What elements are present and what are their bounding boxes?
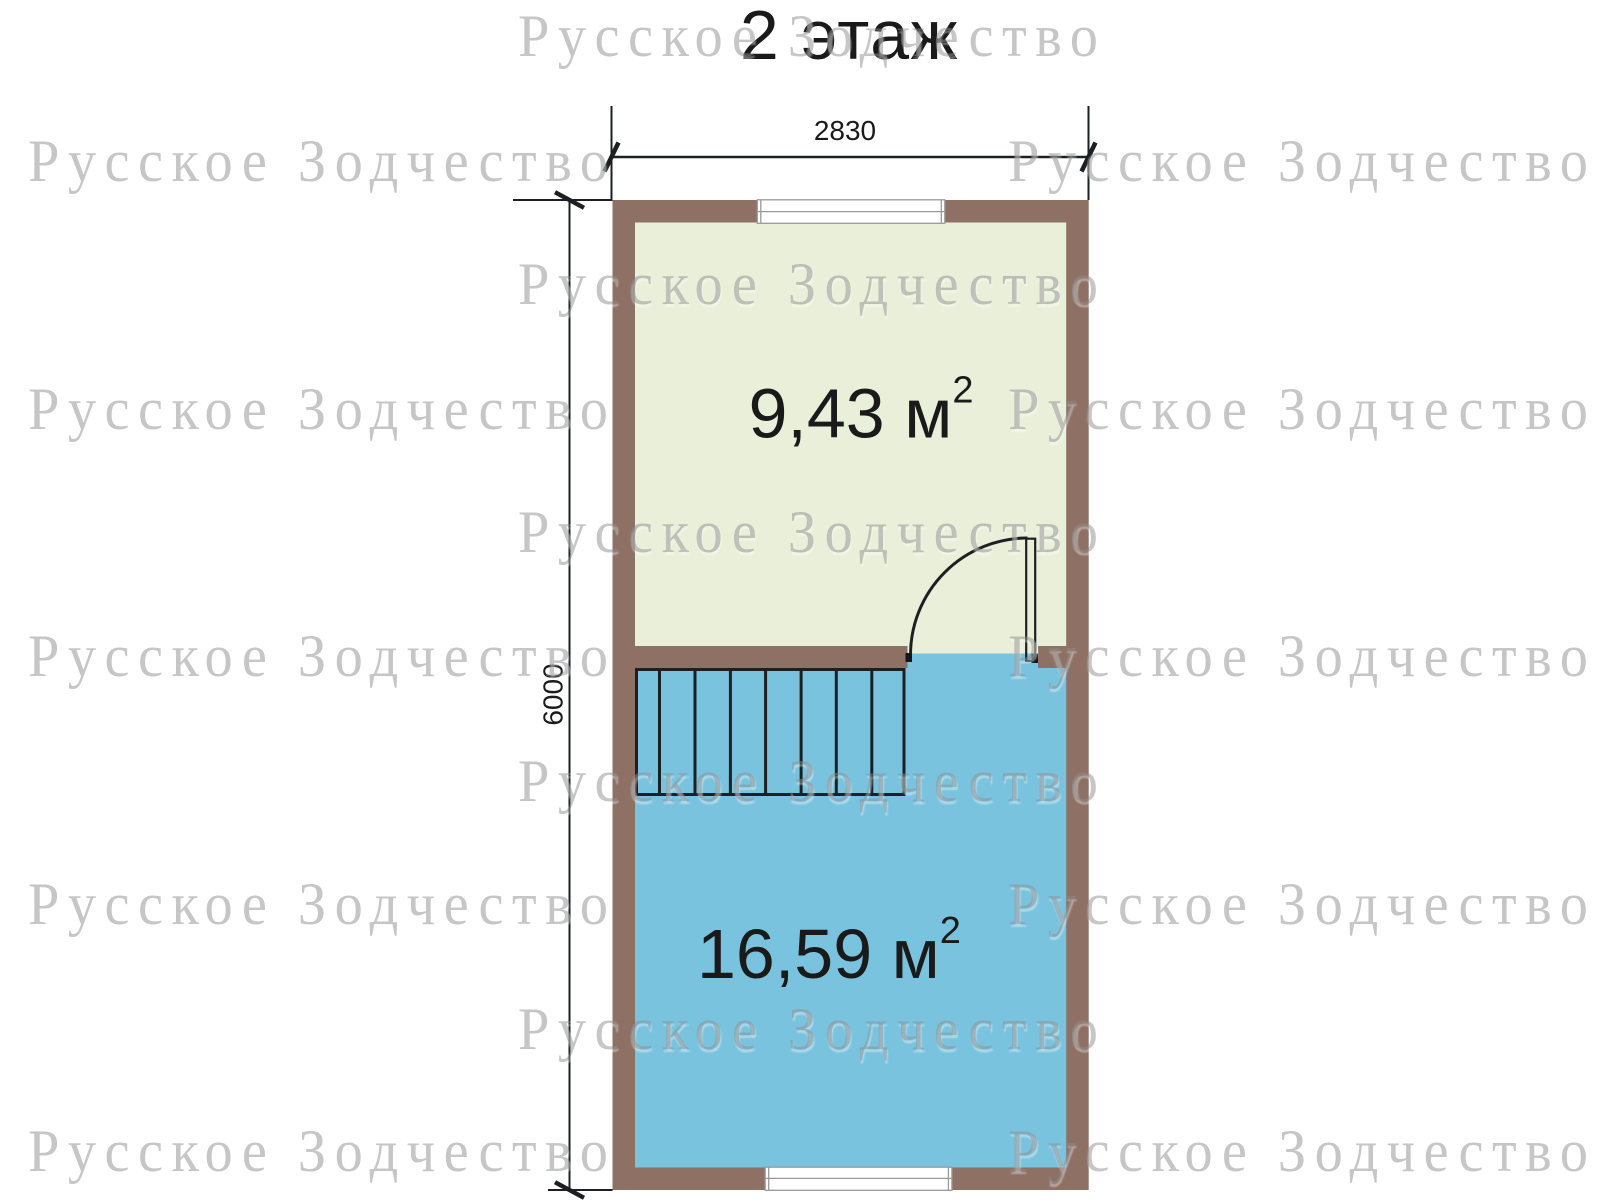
svg-text:6000: 6000	[538, 663, 569, 725]
svg-text:2830: 2830	[814, 115, 876, 146]
svg-text:2 этаж: 2 этаж	[740, 0, 959, 74]
svg-text:9,43 м2: 9,43 м2	[749, 370, 974, 453]
svg-text:16,59 м2: 16,59 м2	[697, 910, 961, 993]
